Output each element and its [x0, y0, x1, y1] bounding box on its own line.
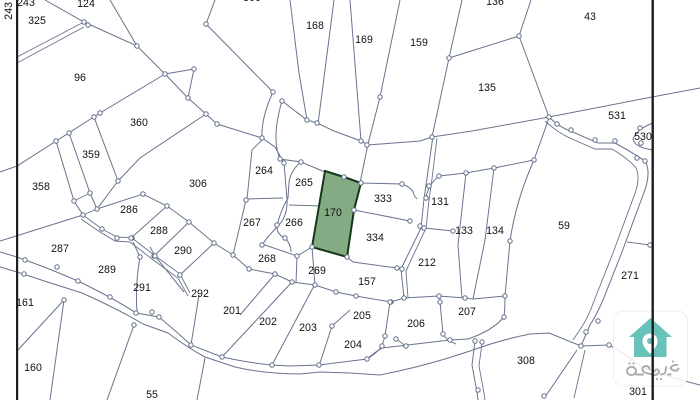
svg-text:206: 206 [407, 318, 425, 330]
svg-text:169: 169 [355, 34, 373, 46]
svg-text:271: 271 [621, 270, 639, 282]
svg-text:124: 124 [77, 0, 95, 10]
svg-text:203: 203 [299, 322, 317, 334]
svg-text:286: 286 [120, 204, 138, 216]
svg-text:135: 135 [478, 82, 496, 94]
svg-text:531: 531 [608, 110, 626, 122]
svg-text:287: 287 [51, 243, 69, 255]
svg-text:530: 530 [634, 131, 652, 143]
svg-text:243: 243 [3, 2, 15, 20]
svg-text:288: 288 [150, 225, 168, 237]
svg-text:301: 301 [629, 386, 647, 398]
svg-text:133: 133 [455, 225, 473, 237]
svg-text:131: 131 [431, 196, 449, 208]
svg-text:134: 134 [486, 225, 504, 237]
svg-text:266: 266 [285, 217, 303, 229]
svg-text:55: 55 [146, 389, 158, 400]
svg-text:212: 212 [418, 257, 436, 269]
svg-text:159: 159 [410, 37, 428, 49]
svg-text:205: 205 [353, 310, 371, 322]
svg-text:268: 268 [258, 253, 276, 265]
svg-text:207: 207 [458, 306, 476, 318]
svg-text:202: 202 [259, 316, 277, 328]
svg-text:358: 358 [32, 181, 50, 193]
svg-text:264: 264 [255, 165, 273, 177]
svg-text:290: 290 [174, 245, 192, 257]
svg-text:289: 289 [98, 264, 116, 276]
svg-text:360: 360 [130, 117, 148, 129]
svg-text:308: 308 [517, 355, 535, 367]
svg-text:291: 291 [133, 282, 151, 294]
svg-text:43: 43 [584, 11, 596, 23]
svg-text:325: 325 [28, 15, 46, 27]
svg-text:161: 161 [16, 297, 34, 309]
svg-text:59: 59 [558, 220, 570, 232]
svg-text:359: 359 [82, 149, 100, 161]
svg-text:334: 334 [366, 232, 384, 244]
svg-text:157: 157 [358, 276, 376, 288]
svg-text:96: 96 [74, 72, 86, 84]
svg-text:267: 267 [243, 217, 261, 229]
svg-text:204: 204 [344, 339, 362, 351]
svg-text:168: 168 [306, 20, 324, 32]
svg-text:201: 201 [223, 305, 241, 317]
svg-text:243: 243 [17, 0, 35, 9]
svg-text:306: 306 [189, 178, 207, 190]
svg-text:333: 333 [374, 193, 392, 205]
svg-text:136: 136 [486, 0, 504, 8]
svg-text:170: 170 [324, 207, 342, 219]
svg-text:292: 292 [191, 288, 209, 300]
svg-text:300: 300 [243, 0, 261, 4]
svg-text:160: 160 [24, 362, 42, 374]
svg-text:269: 269 [308, 265, 326, 277]
svg-text:265: 265 [295, 177, 313, 189]
